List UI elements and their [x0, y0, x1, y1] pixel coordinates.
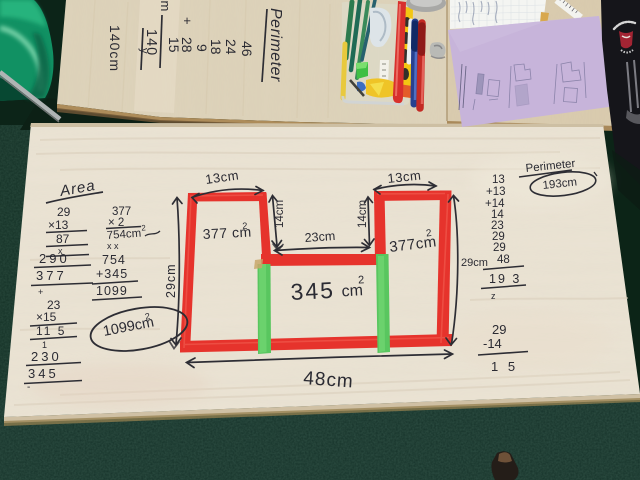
- svg-text:19 3: 19 3: [489, 272, 521, 286]
- svg-text:1 5: 1 5: [491, 359, 518, 374]
- svg-text:x x: x x: [107, 241, 119, 251]
- svg-text:×13: ×13: [48, 218, 69, 232]
- svg-text:z: z: [491, 291, 496, 301]
- svg-text:-14: -14: [483, 336, 502, 351]
- svg-text:11 5: 11 5: [36, 324, 66, 338]
- svg-text:29: 29: [493, 242, 506, 254]
- svg-text:345: 345: [290, 277, 336, 305]
- svg-text:cm: cm: [158, 0, 173, 11]
- svg-text:14cm: 14cm: [357, 200, 369, 228]
- svg-text:-: -: [27, 382, 30, 393]
- svg-text:48: 48: [497, 254, 510, 266]
- svg-text:290: 290: [39, 251, 70, 266]
- svg-text:9: 9: [194, 44, 210, 52]
- svg-text:+: +: [180, 17, 195, 25]
- svg-text:29: 29: [492, 322, 506, 337]
- svg-text:1099: 1099: [96, 284, 128, 298]
- svg-text:y: y: [138, 48, 150, 54]
- svg-text:14cm: 14cm: [274, 200, 286, 228]
- svg-text:+: +: [38, 287, 43, 297]
- svg-text:+345: +345: [96, 267, 128, 281]
- svg-text:23cm: 23cm: [304, 229, 335, 245]
- svg-text:+13: +13: [486, 186, 506, 198]
- svg-text:46: 46: [239, 41, 255, 57]
- svg-text:29cm: 29cm: [164, 263, 178, 298]
- svg-text:140cm: 140cm: [107, 25, 123, 72]
- svg-text:Perimeter: Perimeter: [267, 8, 284, 82]
- svg-text:345: 345: [28, 366, 59, 381]
- svg-text:754cm: 754cm: [106, 228, 141, 242]
- svg-text:48cm: 48cm: [303, 368, 355, 392]
- svg-text:87: 87: [56, 232, 70, 246]
- svg-text:29cm: 29cm: [461, 257, 488, 269]
- svg-text:24: 24: [223, 39, 239, 55]
- svg-text:2: 2: [358, 274, 365, 286]
- svg-text:15: 15: [166, 37, 182, 53]
- svg-text:754: 754: [102, 253, 126, 267]
- svg-text:13: 13: [492, 174, 505, 186]
- svg-text:2: 2: [242, 221, 248, 231]
- svg-text:×15: ×15: [36, 310, 57, 324]
- svg-text:29: 29: [57, 205, 71, 219]
- svg-text:377: 377: [36, 268, 67, 283]
- svg-text:230: 230: [31, 349, 62, 364]
